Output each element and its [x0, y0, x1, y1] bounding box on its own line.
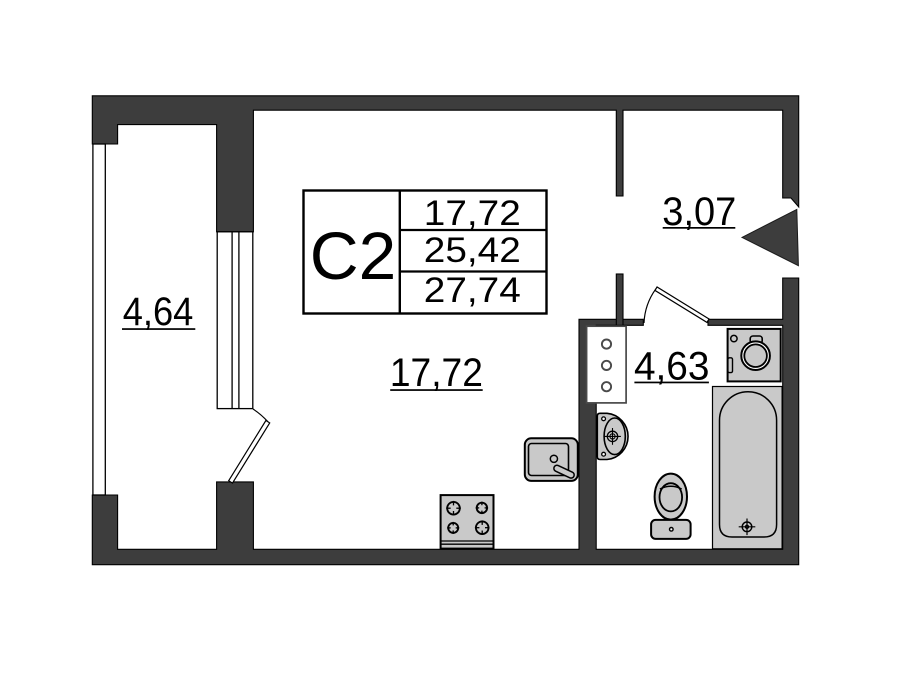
- svg-text:4,64: 4,64: [123, 290, 194, 334]
- svg-text:17,72: 17,72: [390, 351, 483, 395]
- svg-text:C2: C2: [310, 219, 397, 294]
- svg-text:27,74: 27,74: [424, 271, 521, 310]
- svg-text:25,42: 25,42: [424, 231, 521, 270]
- svg-text:17,72: 17,72: [424, 194, 521, 233]
